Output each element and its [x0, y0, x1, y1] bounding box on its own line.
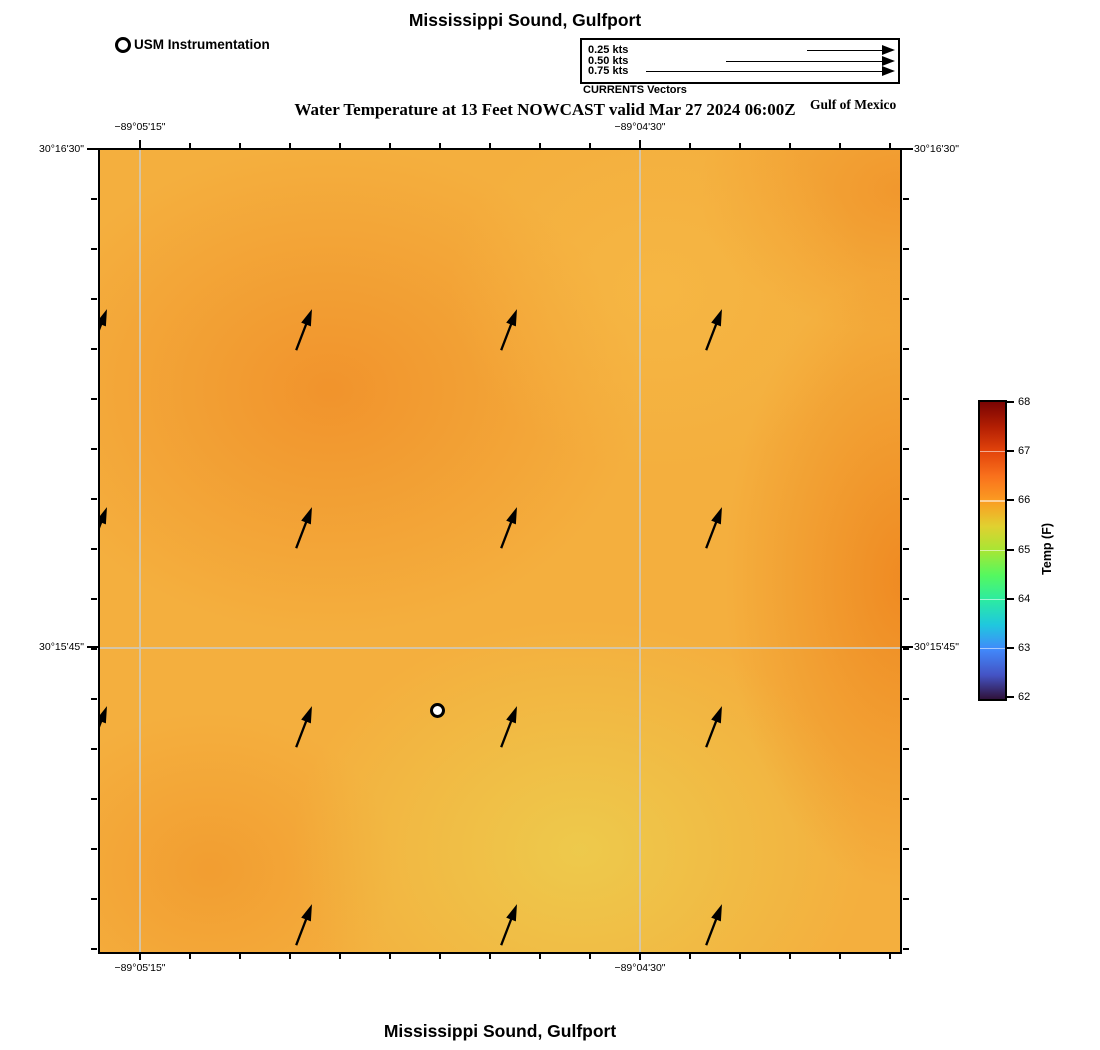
currents-legend-arrow-icon [726, 61, 892, 62]
current-vector-arrow [98, 702, 118, 752]
current-vector-layer [100, 150, 900, 952]
current-vector-arrow [697, 702, 732, 752]
current-vector-arrow [492, 900, 527, 950]
y-axis-left-label: 30°15'45" [18, 641, 84, 653]
colorbar-tick-label: 63 [1018, 642, 1030, 654]
major-tick [639, 140, 641, 148]
figure: Mississippi Sound, Gulfport USM Instrume… [0, 0, 1100, 1050]
colorbar-axis-label: Temp (F) [1040, 400, 1054, 697]
colorbar-tick [1007, 499, 1014, 501]
footer-title: Mississippi Sound, Gulfport [100, 1021, 900, 1042]
current-vector-arrow [697, 900, 732, 950]
current-vector-arrow [492, 503, 527, 553]
colorbar-gridline [980, 599, 1005, 600]
y-axis-left-label: 30°16'30" [18, 143, 84, 155]
currents-legend-caption: CURRENTS Vectors [583, 84, 687, 96]
current-vector-arrow [697, 503, 732, 553]
page-title: Mississippi Sound, Gulfport [125, 10, 925, 31]
current-vector-arrow [287, 503, 322, 553]
currents-legend-arrow-icon [807, 50, 892, 51]
major-tick [87, 148, 98, 150]
x-axis-bottom-label: −89°04'30" [585, 962, 695, 974]
colorbar-tick [1007, 401, 1014, 403]
colorbar-gridline [980, 500, 1005, 501]
current-vector-arrow [287, 900, 322, 950]
current-vector-arrow [697, 305, 732, 355]
x-axis-top-label: −89°05'15" [85, 121, 195, 133]
major-tick [87, 646, 98, 648]
current-vector-arrow [98, 305, 118, 355]
y-axis-right-ticks [903, 198, 909, 950]
y-axis-right-label: 30°15'45" [914, 641, 959, 653]
y-axis-left-ticks [91, 198, 97, 950]
colorbar-tick-label: 66 [1018, 494, 1030, 506]
colorbar-tick-label: 68 [1018, 396, 1030, 408]
colorbar-tick-label: 67 [1018, 445, 1030, 457]
major-tick [902, 646, 913, 648]
colorbar-tick-label: 64 [1018, 593, 1030, 605]
x-axis-bottom-label: −89°05'15" [85, 962, 195, 974]
currents-legend-item-label: 0.75 kts [588, 66, 628, 77]
colorbar-tick [1007, 696, 1014, 698]
major-tick [139, 140, 141, 148]
current-vector-arrow [98, 503, 118, 553]
current-vector-arrow [287, 702, 322, 752]
colorbar-tick [1007, 450, 1014, 452]
temperature-heatmap [98, 148, 902, 954]
colorbar-tick-label: 62 [1018, 691, 1030, 703]
currents-legend-box: 0.25 kts 0.50 kts 0.75 kts [580, 38, 900, 84]
current-vector-arrow [492, 305, 527, 355]
region-label: Gulf of Mexico [810, 97, 896, 113]
colorbar-tick [1007, 647, 1014, 649]
currents-legend-arrow-icon [646, 71, 892, 72]
colorbar-gridline [980, 451, 1005, 452]
x-axis-top-label: −89°04'30" [585, 121, 695, 133]
instrumentation-marker-icon [115, 37, 131, 53]
colorbar-gridline [980, 550, 1005, 551]
current-vector-arrow [492, 702, 527, 752]
colorbar-gridline [980, 648, 1005, 649]
major-tick [902, 148, 913, 150]
station-marker-icon [430, 703, 445, 718]
colorbar-tick [1007, 598, 1014, 600]
instrumentation-legend-label: USM Instrumentation [134, 37, 270, 52]
y-axis-right-label: 30°16'30" [914, 143, 959, 155]
current-vector-arrow [287, 305, 322, 355]
colorbar-tick [1007, 549, 1014, 551]
colorbar-tick-label: 65 [1018, 544, 1030, 556]
